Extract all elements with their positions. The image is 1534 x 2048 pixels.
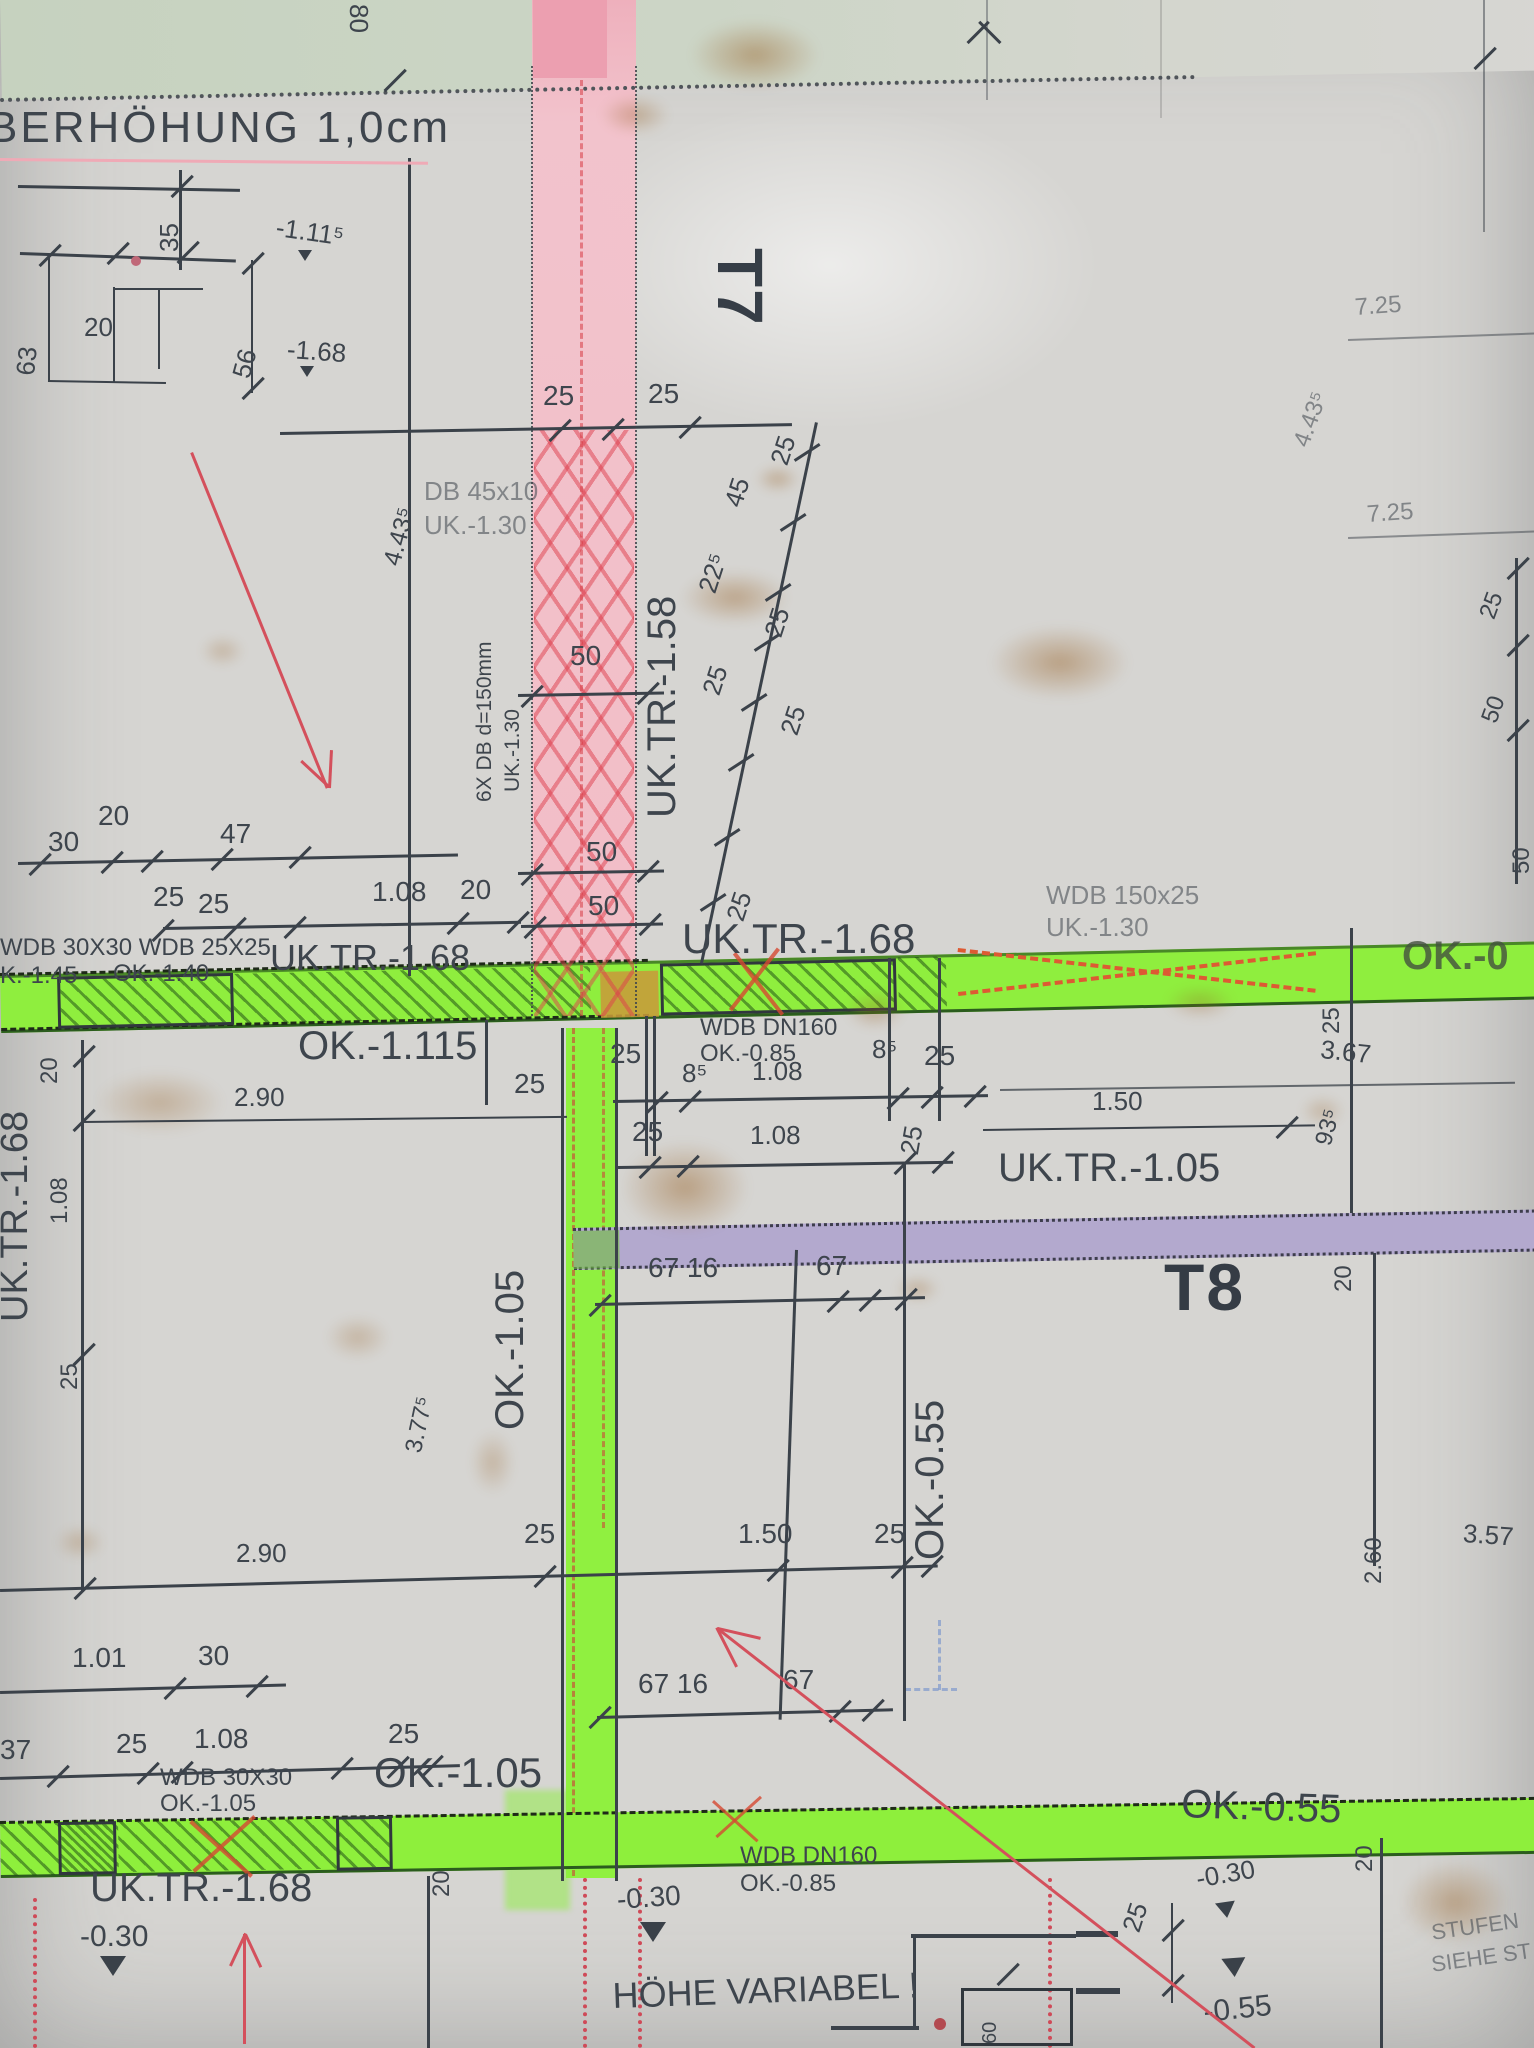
label-d67a: 67 [816, 1252, 847, 1280]
label-wdb3030b: WDB 30X30 [160, 1766, 292, 1790]
pink-band-red-hatch [534, 430, 634, 1016]
label-wdbdn160a: WDB DN160 [700, 1016, 837, 1040]
label-d25s: 25 [874, 1520, 905, 1548]
label-d25k: 25 [514, 1070, 545, 1098]
label-t80: 80 [346, 4, 372, 33]
label-k145: K.-1.45 [0, 964, 77, 988]
label-d25c: 25 [760, 604, 794, 640]
drawing-line [115, 288, 203, 290]
label-ok1115: OK.-1.115 [298, 1026, 477, 1066]
label-d6716a: 67 16 [648, 1254, 718, 1282]
rust-stain [845, 990, 905, 1030]
label-d108c: 1.08 [750, 1122, 801, 1148]
dim-tick [171, 175, 194, 198]
label-d25b: 25 [648, 380, 679, 408]
label-d25t: 25 [116, 1730, 147, 1758]
label-d25h: 25 [153, 883, 184, 911]
drawing-line [595, 1296, 925, 1305]
label-d20g: 20 [1353, 1845, 1377, 1872]
label-d20a: 20 [84, 314, 113, 340]
label-d25j: 25 [610, 1040, 641, 1068]
rust-stain [620, 1140, 750, 1235]
label-ok105big: OK.-1.05 [374, 1752, 542, 1794]
label-d25w: 25 [1476, 589, 1508, 622]
label-wdb3030a: WDB 30X30 WDB 25X25 [0, 936, 271, 960]
step-detail-rect [961, 1988, 1073, 2046]
label-d20e: 20 [1332, 1265, 1356, 1292]
drawing-line [597, 1708, 893, 1718]
dim-tick [107, 242, 130, 265]
red-marker-line [328, 750, 332, 788]
label-d935: 93⁵ [1312, 1107, 1345, 1149]
label-d25v: 25 [1118, 1899, 1152, 1935]
label-d6716b: 67 16 [638, 1670, 708, 1698]
label-m168a: -1.68 [286, 336, 347, 366]
label-uk130b: UK.-1.30 [502, 709, 523, 792]
pink-highlight-core [533, 0, 607, 78]
dim-tick [827, 1290, 850, 1313]
label-d20b: 20 [98, 802, 129, 830]
drawing-line [831, 2026, 919, 2030]
drawing-line [486, 1020, 489, 1105]
drawing-line [409, 158, 412, 976]
label-d290b: 2.90 [236, 1540, 287, 1566]
label-d37: 37 [0, 1736, 31, 1764]
label-d725b: 7.25 [1366, 500, 1414, 527]
label-d85a: 8⁵ [682, 1060, 707, 1086]
red-dashed-line [572, 1028, 575, 1876]
label-m030a: -0.30 [80, 1922, 148, 1952]
rust-stain [200, 635, 245, 667]
drawing-line [911, 1934, 1076, 1938]
label-uk130c: UK.-1.30 [1046, 914, 1149, 940]
label-db45: DB 45x10 [424, 478, 538, 504]
label-ok0r: OK.-0 [1402, 936, 1509, 976]
label-uktr105: UK.TR.-1.05 [998, 1148, 1220, 1188]
label-d25q: 25 [58, 1363, 82, 1390]
rust-stain [755, 465, 800, 493]
drawing-line [18, 185, 240, 192]
drawing-line [615, 1028, 618, 1881]
label-d25r: 25 [524, 1520, 555, 1548]
drawing-line [18, 854, 458, 865]
label-d725a: 7.25 [1354, 293, 1402, 320]
light-patch [560, 100, 1100, 430]
green-band-vertical [566, 1028, 618, 1878]
label-d63: 63 [12, 345, 41, 376]
dim-tick [1276, 1116, 1299, 1139]
dim-tick [646, 1091, 669, 1114]
pink-band-dotted-border-right [635, 66, 637, 1016]
drawing-line [779, 1250, 798, 1720]
label-d50a: 50 [570, 642, 601, 670]
level-mark-triangle [640, 1922, 666, 1942]
label-uktr168a: UK.TR.-1.68 [270, 940, 470, 976]
red-marker-line [245, 1934, 262, 1968]
drawing-line [1351, 928, 1354, 1213]
label-d25e: 25 [776, 702, 810, 738]
drawing-line [0, 1564, 938, 1591]
label-d20c: 20 [460, 876, 491, 904]
label-d150a: 1.50 [1092, 1088, 1143, 1114]
label-d367a: 3.67 [1319, 1036, 1372, 1067]
pink-band-red-centerline [580, 80, 583, 1016]
drawing-line [0, 1684, 286, 1694]
red-dotted-line [583, 1878, 587, 2048]
label-d108d: 1.08 [48, 1177, 72, 1224]
label-d50c: 50 [588, 892, 619, 920]
drawing-line [1483, 0, 1485, 232]
blue-dashed-line [905, 1688, 957, 1691]
dim-tick [1507, 719, 1530, 742]
dim-tick [1507, 557, 1530, 580]
label-d25n: 25 [896, 1124, 927, 1157]
rust-stain [470, 1430, 515, 1495]
label-m030b: -0.30 [616, 1882, 682, 1914]
drawing-line [986, 0, 988, 100]
label-d290a: 2.90 [234, 1084, 285, 1110]
label-t8: T8 [1164, 1254, 1245, 1320]
blue-dashed-line [938, 1620, 941, 1690]
label-d108e: 1.08 [194, 1725, 249, 1753]
red-dashed-line [602, 1028, 605, 1528]
rust-stain [1165, 985, 1235, 1020]
label-uk130a: UK.-1.30 [424, 512, 527, 538]
label-d25u: 25 [388, 1720, 419, 1748]
label-d443a: 4.43⁵ [380, 505, 419, 568]
rust-stain [95, 1070, 225, 1135]
level-mark-triangle [1215, 1901, 1237, 1920]
label-m030c: -0.30 [1194, 1856, 1257, 1892]
label-d108a: 1.08 [372, 878, 427, 906]
wall-hatched-block [336, 1816, 393, 1871]
label-ok055big: OK.-0.55 [1181, 1784, 1342, 1830]
drawing-line [1381, 1838, 1384, 2048]
label-t7: T7 [708, 248, 772, 327]
label-d30b: 30 [198, 1642, 229, 1670]
dim-tick [73, 1045, 96, 1068]
label-uktr168d: UK.TR.-1.68 [90, 1868, 312, 1908]
label-ok105v: OK.-1.05 [490, 1270, 530, 1430]
drawing-line [48, 380, 166, 384]
label-ok055v: OK.-0.55 [910, 1400, 950, 1560]
label-d25l: 25 [924, 1042, 955, 1070]
label-d85b: 8⁵ [872, 1036, 897, 1062]
label-wdbdn160b: WDB DN160 [740, 1844, 877, 1868]
label-d357: 3.57 [1462, 1520, 1514, 1549]
wall-hatch [118, 1819, 341, 1872]
label-d45: 45 [720, 474, 754, 510]
rust-stain [690, 20, 820, 90]
label-d260: 2.60 [1362, 1537, 1386, 1584]
paper-crease [1160, 0, 1162, 118]
drawing-line [163, 921, 521, 930]
label-uktr168b: UK.TR.-1.68 [682, 918, 915, 960]
drawing-line [561, 1028, 564, 1881]
red-marker-line [191, 452, 329, 789]
label-d30a: 30 [48, 828, 79, 856]
label-d50d: 50 [1478, 693, 1510, 726]
label-d20f: 20 [430, 1870, 454, 1897]
label-ok105b: OK.-1.05 [160, 1792, 256, 1816]
drawing-line [983, 1124, 1315, 1131]
purple-green-overlap [573, 1230, 620, 1269]
drawing-line [1076, 1988, 1120, 1994]
label-d377: 3.77⁵ [402, 1395, 437, 1455]
rust-stain [990, 625, 1130, 700]
label-uktr158: UK.TR.-1.58 [642, 596, 682, 818]
label-ueber: BERHÖHUNG 1,0cm [0, 106, 451, 150]
construction-plan-photo: 80BERHÖHUNG 1,0cm35632056-1.11⁵-1.682525… [0, 0, 1534, 2048]
label-siehe: SIEHE ST [1430, 1940, 1532, 1976]
dim-tick [1507, 634, 1530, 657]
label-d25d: 25 [698, 662, 732, 698]
red-underline [0, 158, 428, 165]
dim-tick [242, 252, 265, 275]
label-hoehe: HÖHE VARIABEL ! [612, 1967, 919, 2014]
label-ok085b: OK.-0.85 [740, 1872, 836, 1896]
red-marker-line [244, 1934, 247, 2044]
label-m111: -1.11⁵ [274, 214, 345, 249]
label-d108b: 1.08 [752, 1058, 803, 1084]
label-m055: -0.55 [1202, 1991, 1273, 2028]
drawing-line [1000, 1082, 1515, 1091]
drawing-line [113, 287, 115, 383]
drawing-line [158, 289, 160, 369]
label-d56: 56 [228, 346, 261, 381]
drawing-line [428, 1876, 431, 2048]
label-d101: 1.01 [72, 1644, 127, 1672]
label-d25a: 25 [543, 382, 574, 410]
label-d25i: 25 [198, 890, 229, 918]
label-uktr168c: UK.TR.-1.68 [0, 1111, 34, 1322]
drawing-line [48, 254, 50, 382]
label-d35: 35 [156, 223, 182, 252]
label-d25m: 25 [632, 1118, 663, 1146]
label-db6x: 6X DB d=150mm [474, 642, 495, 803]
dim-tick [859, 1289, 882, 1312]
label-wdb150: WDB 150x25 [1046, 882, 1199, 908]
label-d25o: 25 [1320, 1007, 1344, 1034]
level-mark-triangle [1221, 1957, 1246, 1978]
label-d50e: 50 [1510, 847, 1534, 874]
dim-tick [73, 1343, 96, 1366]
red-dotted-line [33, 1898, 37, 2048]
label-d60step: 60 [980, 2022, 1000, 2044]
dim-tick [997, 1963, 1020, 1986]
drawing-line [1374, 1253, 1377, 1566]
level-mark-triangle [298, 250, 312, 261]
label-d443b: 4.43⁵ [1290, 389, 1332, 450]
level-mark-triangle [100, 1956, 126, 1976]
drawing-line [1348, 530, 1534, 539]
red-marker-line [300, 760, 329, 788]
label-ok140: OK.-1.40 [113, 962, 209, 986]
rust-stain [55, 1525, 105, 1560]
label-d50b: 50 [586, 838, 617, 866]
drawing-line [1348, 332, 1534, 341]
red-survey-dot [934, 2018, 946, 2030]
dim-tick [1162, 1919, 1185, 1942]
rust-stain [325, 1315, 390, 1360]
red-survey-dot [131, 256, 141, 266]
label-d150b: 1.50 [738, 1520, 793, 1548]
drawing-line [1516, 558, 1519, 884]
label-d47: 47 [220, 820, 251, 848]
label-d25g: 25 [766, 432, 800, 468]
label-d20d: 20 [38, 1057, 62, 1084]
drawing-line [903, 1163, 906, 1721]
level-mark-triangle [300, 366, 314, 377]
